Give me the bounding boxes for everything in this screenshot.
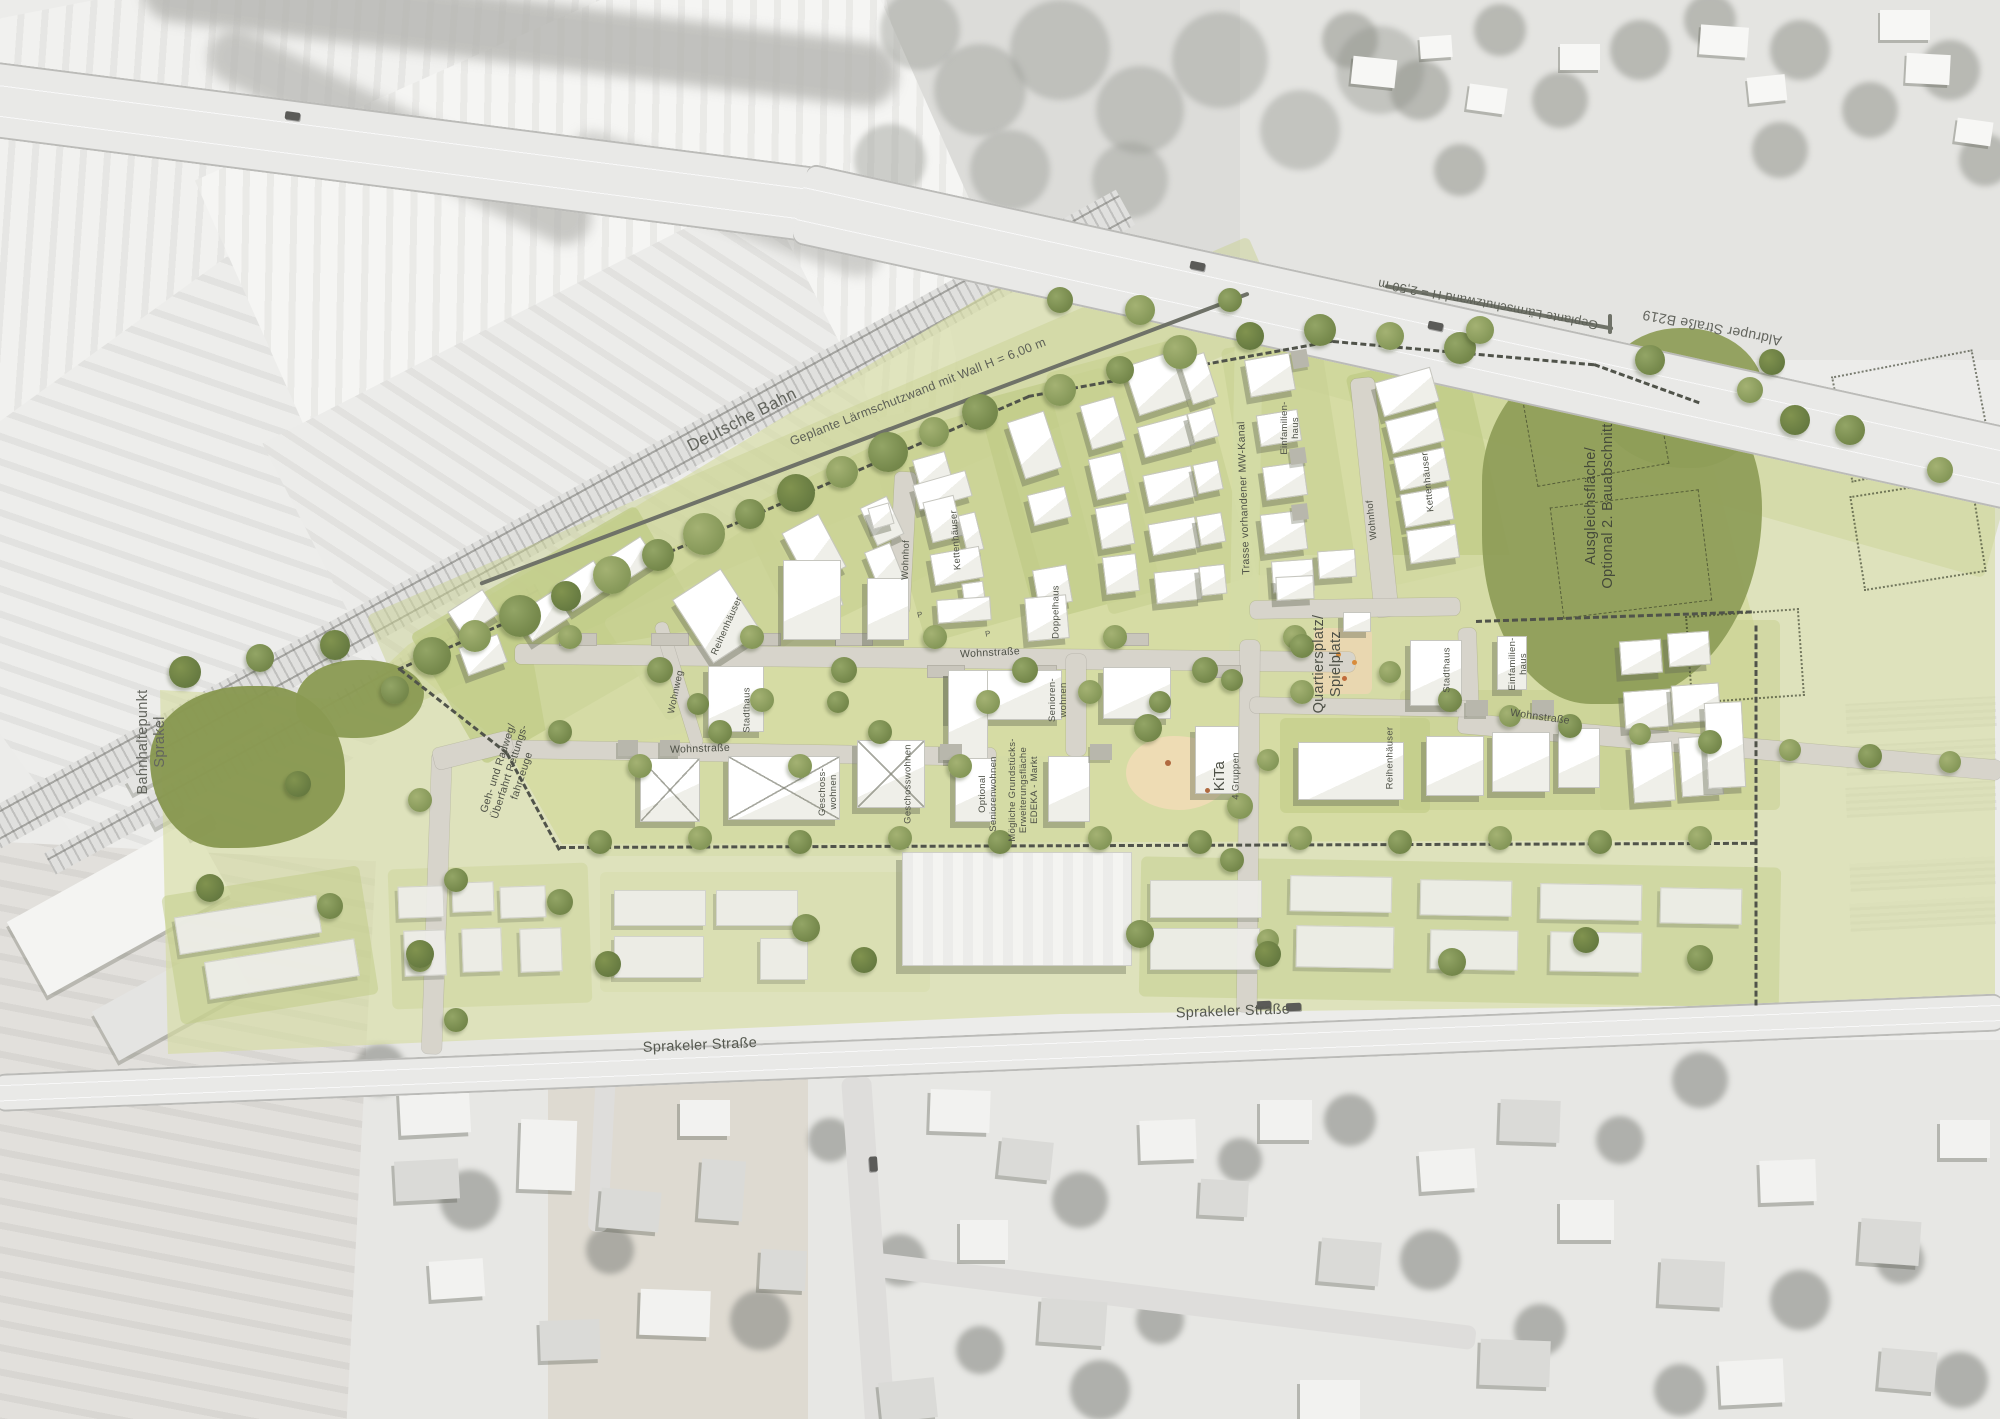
label-wohnweg: Wohnweg — [666, 669, 686, 715]
label-geschosswohnen-2: Geschosswohnen — [902, 744, 913, 824]
label-quartiersplatz-spielplatz: Quartiersplatz/ Spielplatz — [1311, 615, 1345, 714]
label-kita-gruppen: 4 Gruppen — [1230, 752, 1241, 800]
label-geh-radweg-rettung: Geh- und Radweg/ Überfahrt Rettungs- fah… — [477, 720, 543, 825]
label-laermschutzwand-2-50m: Geplante Lärmschutzwand H = 2,50 m — [1377, 276, 1600, 332]
label-seniorenwohnen-2: Senioren- wohnen — [1047, 678, 1069, 722]
label-kettenhaeuser-1: Kettenhäuser — [948, 510, 963, 571]
label-ausgleichsflaeche: Ausgleichsfläche/ Optional 2. Bauabschni… — [1583, 423, 1617, 588]
label-wohnstrasse-3: Wohnstraße — [1509, 707, 1570, 728]
label-trasse-mw-kanal: Trasse vorhandener MW-Kanal — [1235, 421, 1253, 575]
label-kettenhaeuser-2: Kettenhäuser — [1419, 452, 1436, 513]
label-geschosswohnen-1: Geschoss- wohnen — [817, 768, 839, 816]
label-wohnhof-2: Wohnhof — [1364, 500, 1379, 541]
label-optional-seniorenwohnen: Optional Seniorenwohnen — [977, 756, 999, 832]
labels-layer: Deutsche BahnGeplante Lärmschutzwand mit… — [0, 0, 2000, 1419]
label-laermschutzwand-wall-6m: Geplante Lärmschutzwand mit Wall H = 6,0… — [788, 335, 1048, 449]
label-bahnhaltepunkt-sprakel: Bahnhaltepunkt Sprakel — [135, 690, 169, 795]
label-reihenhaeuser-2: Reihenhäuser — [1384, 727, 1395, 790]
label-stadthaus-1: Stadthaus — [741, 687, 752, 732]
site-plan-map: Deutsche BahnGeplante Lärmschutzwand mit… — [0, 0, 2000, 1419]
label-sprakeler-strasse-2: Sprakeler Straße — [1176, 1001, 1291, 1022]
label-edeka-erweiterung: Mögliche Grundstücks- Erweiterungsfläche… — [1007, 738, 1041, 841]
label-sprakeler-strasse-1: Sprakeler Straße — [642, 1035, 757, 1057]
label-kita: KiTa — [1211, 761, 1229, 791]
label-aldruper-strasse-b219: Aldruper Straße B219 — [1641, 307, 1783, 350]
label-parking-p-1: P — [916, 610, 924, 621]
label-wohnhof-1: Wohnhof — [900, 540, 913, 580]
label-deutsche-bahn: Deutsche Bahn — [684, 384, 800, 456]
label-wohnstrasse-1: Wohnstraße — [670, 742, 730, 756]
label-reihenhaeuser-1: Reihenhäuser — [709, 595, 745, 657]
label-einfamilienhaus-1: Einfamilien- haus — [1279, 401, 1301, 454]
label-wohnstrasse-2: Wohnstraße — [960, 645, 1021, 660]
label-parking-p-2: P — [984, 629, 991, 639]
label-stadthaus-2: Stadthaus — [1441, 647, 1452, 692]
label-doppelhaus: Doppelhaus — [1050, 585, 1061, 639]
label-einfamilienhaus-2: Einfamilien- haus — [1507, 637, 1529, 690]
